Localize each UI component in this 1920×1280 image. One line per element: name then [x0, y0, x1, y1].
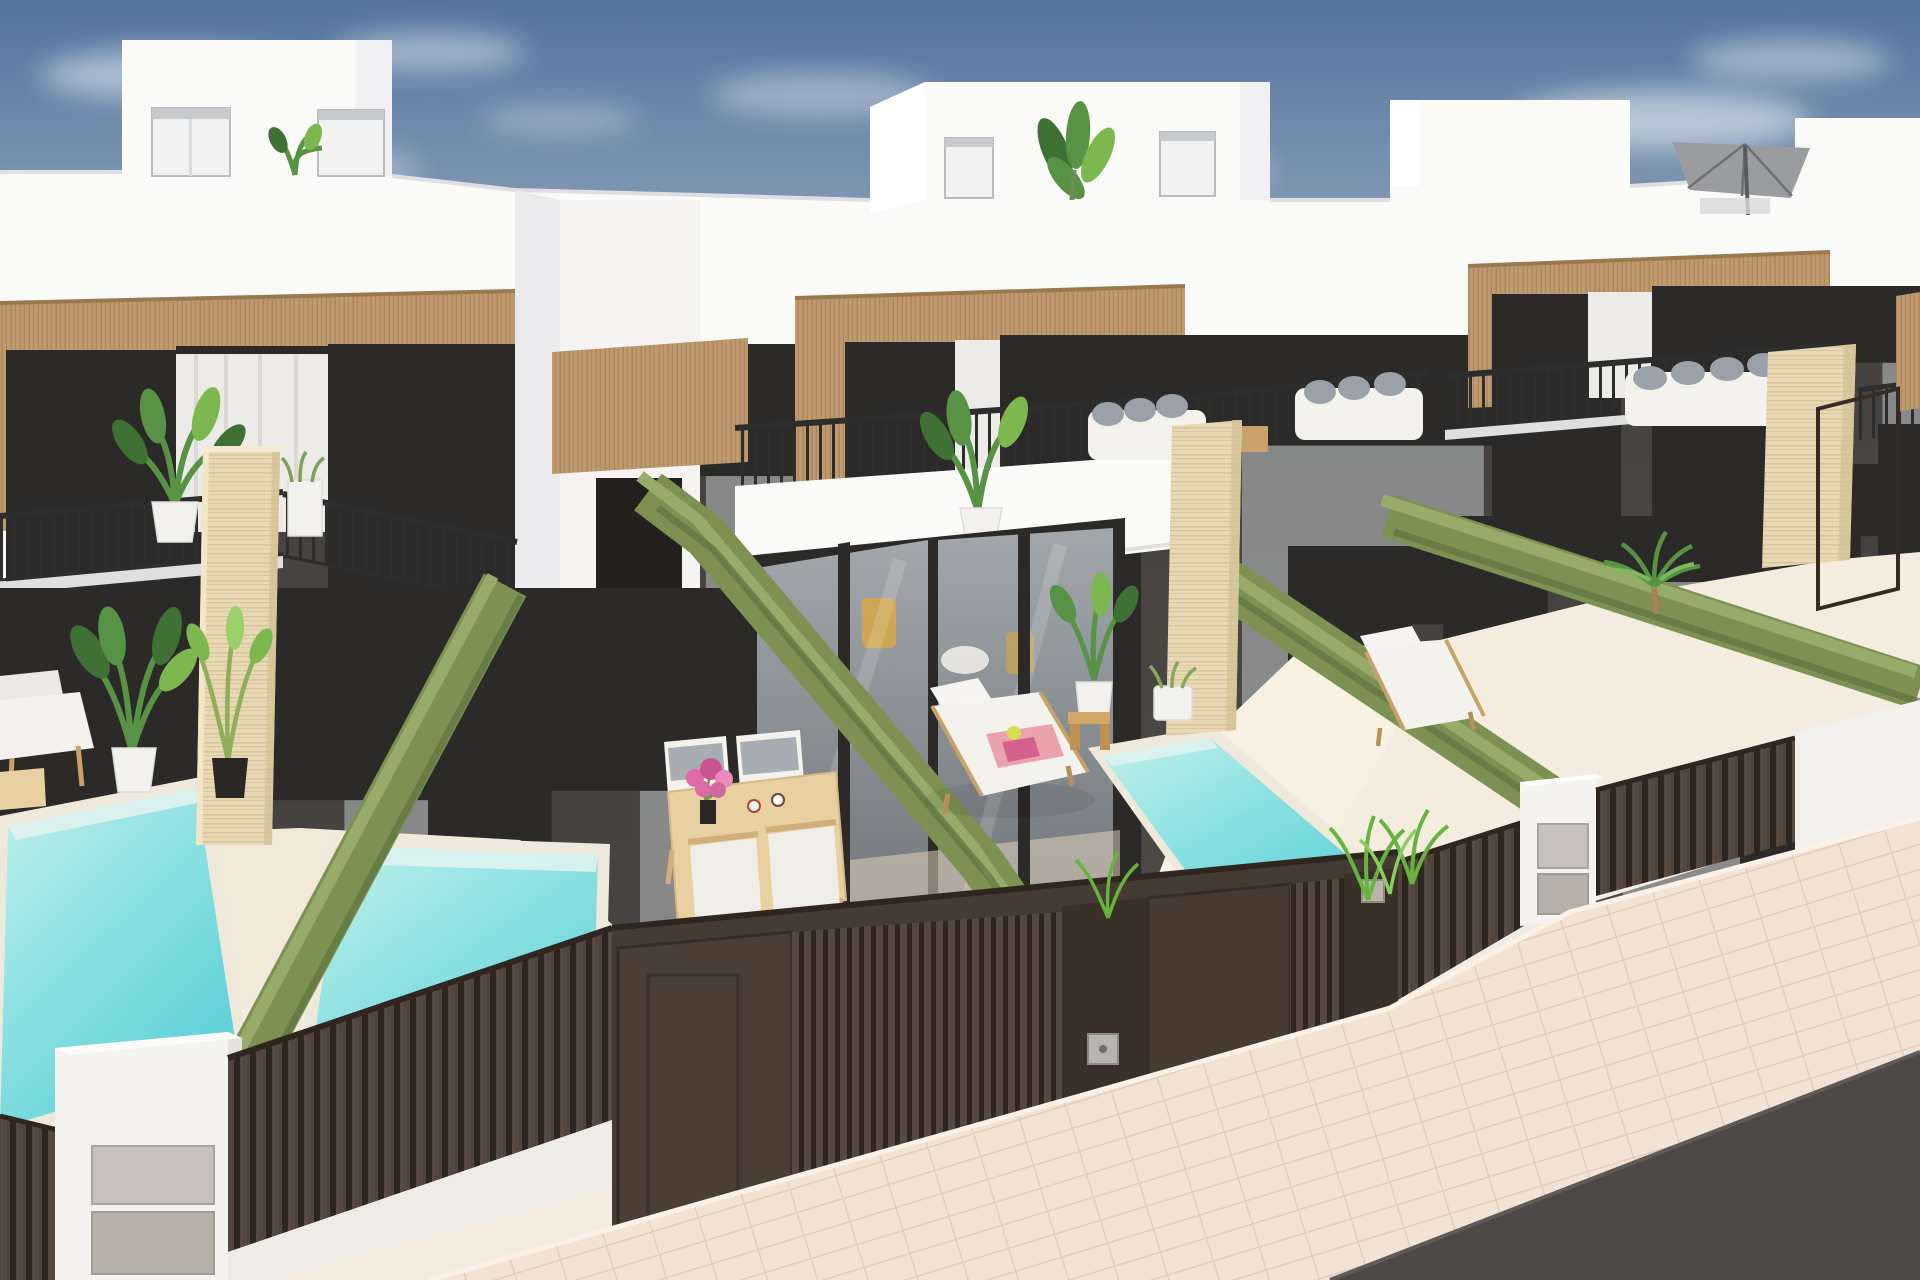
- letterbox-panel: [92, 1212, 214, 1274]
- letterbox-panel: [92, 1146, 214, 1204]
- letterbox-pillar: [55, 1032, 242, 1280]
- render-viewport: 3D render: row of modern white two-store…: [0, 0, 1920, 1280]
- front-fence: [0, 1116, 58, 1280]
- stone-pillar: [1762, 344, 1856, 568]
- letterbox-panel: [1538, 824, 1588, 868]
- letterbox-pillar: [1520, 774, 1604, 926]
